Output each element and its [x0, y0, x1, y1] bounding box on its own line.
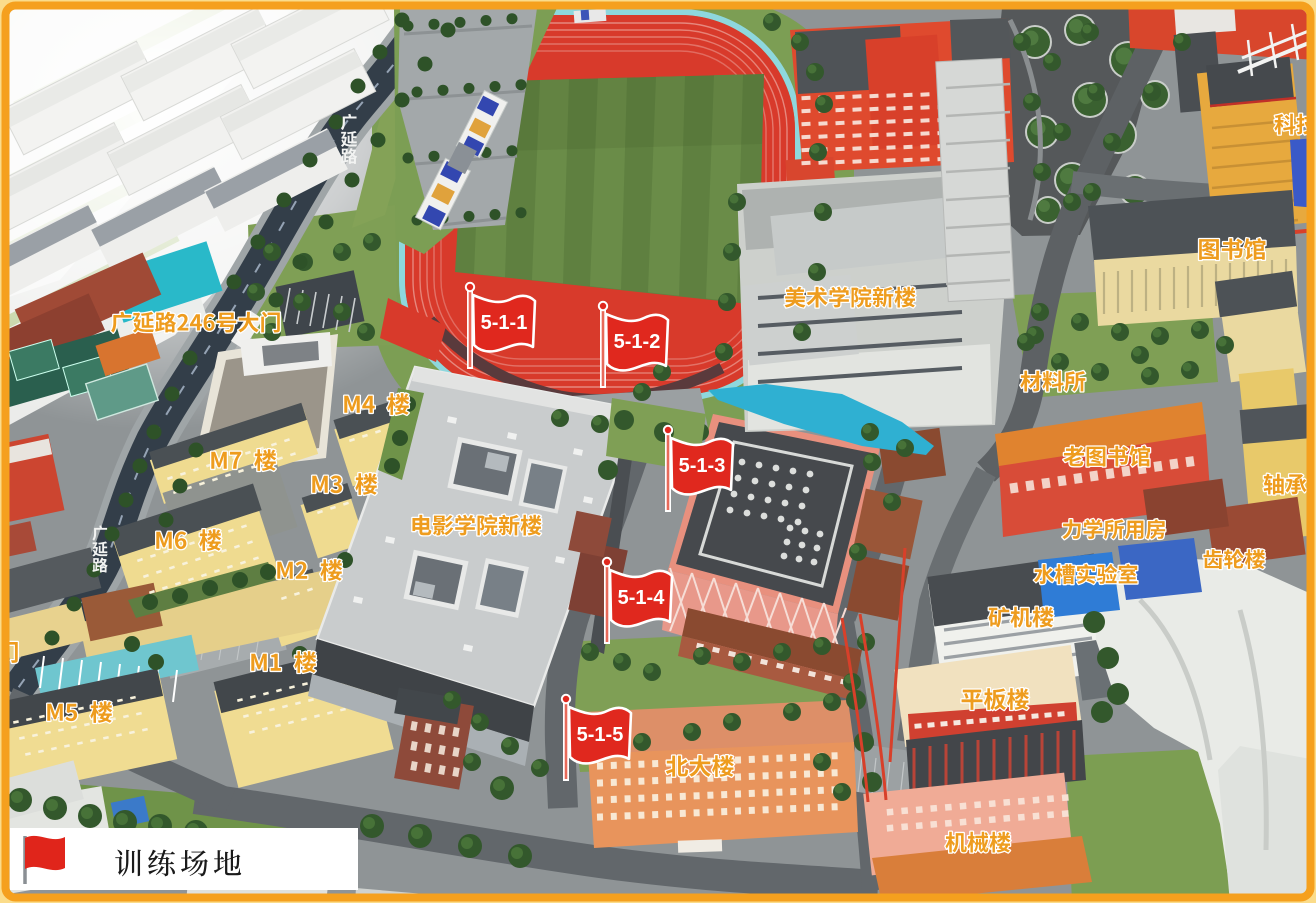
svg-text:5-1-1: 5-1-1 [481, 312, 528, 334]
svg-text:5-1-4: 5-1-4 [618, 587, 666, 609]
svg-text:5-1-3: 5-1-3 [679, 455, 726, 477]
svg-text:5-1-5: 5-1-5 [577, 724, 624, 746]
svg-text:5-1-2: 5-1-2 [614, 331, 661, 353]
